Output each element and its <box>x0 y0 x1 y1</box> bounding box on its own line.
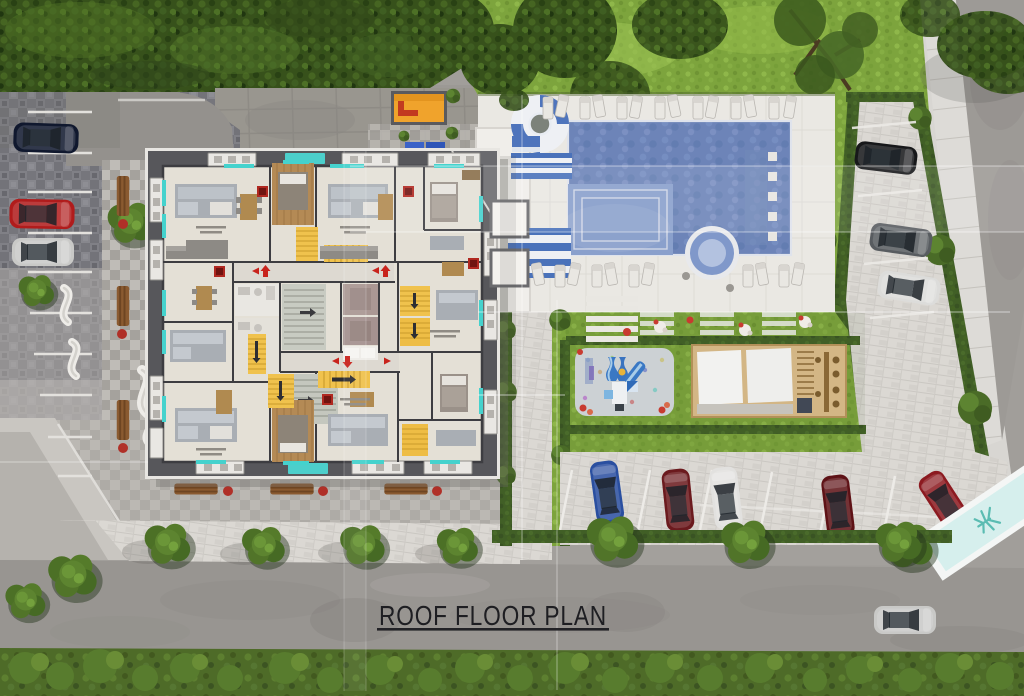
svg-text:ROOF FLOOR PLAN: ROOF FLOOR PLAN <box>379 600 607 631</box>
